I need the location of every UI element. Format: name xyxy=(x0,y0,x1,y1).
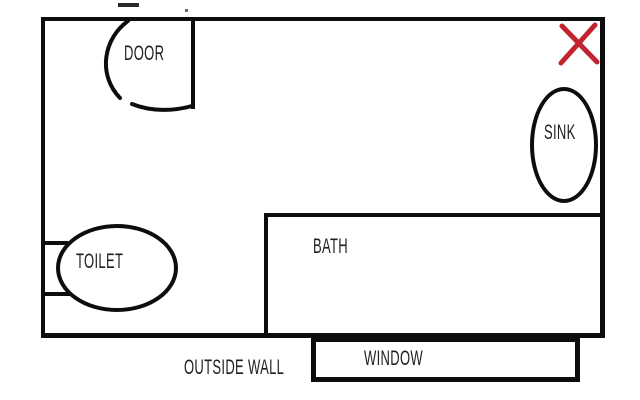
room-wall-left xyxy=(41,17,45,338)
door-label: DOOR xyxy=(124,43,164,64)
window-rectangle xyxy=(311,337,580,382)
outside-wall-label: OUTSIDE WALL xyxy=(184,357,284,378)
toilet-wall-tick-bottom xyxy=(41,292,70,296)
window-label: WINDOW xyxy=(364,348,423,369)
bath-rectangle xyxy=(264,213,605,338)
stray-pen-dash xyxy=(118,3,139,7)
stray-pen-dot xyxy=(185,9,188,12)
room-wall-top xyxy=(41,17,605,21)
door-jamb-line xyxy=(191,19,195,109)
bath-label: BATH xyxy=(313,236,348,257)
floor-plan-canvas: DOOR SINK TOILET BATH WINDOW OUTSIDE WAL… xyxy=(0,0,640,400)
sink-ellipse xyxy=(530,87,598,203)
sink-label: SINK xyxy=(544,122,576,143)
toilet-label: TOILET xyxy=(76,251,123,272)
toilet-wall-tick-top xyxy=(41,241,68,245)
